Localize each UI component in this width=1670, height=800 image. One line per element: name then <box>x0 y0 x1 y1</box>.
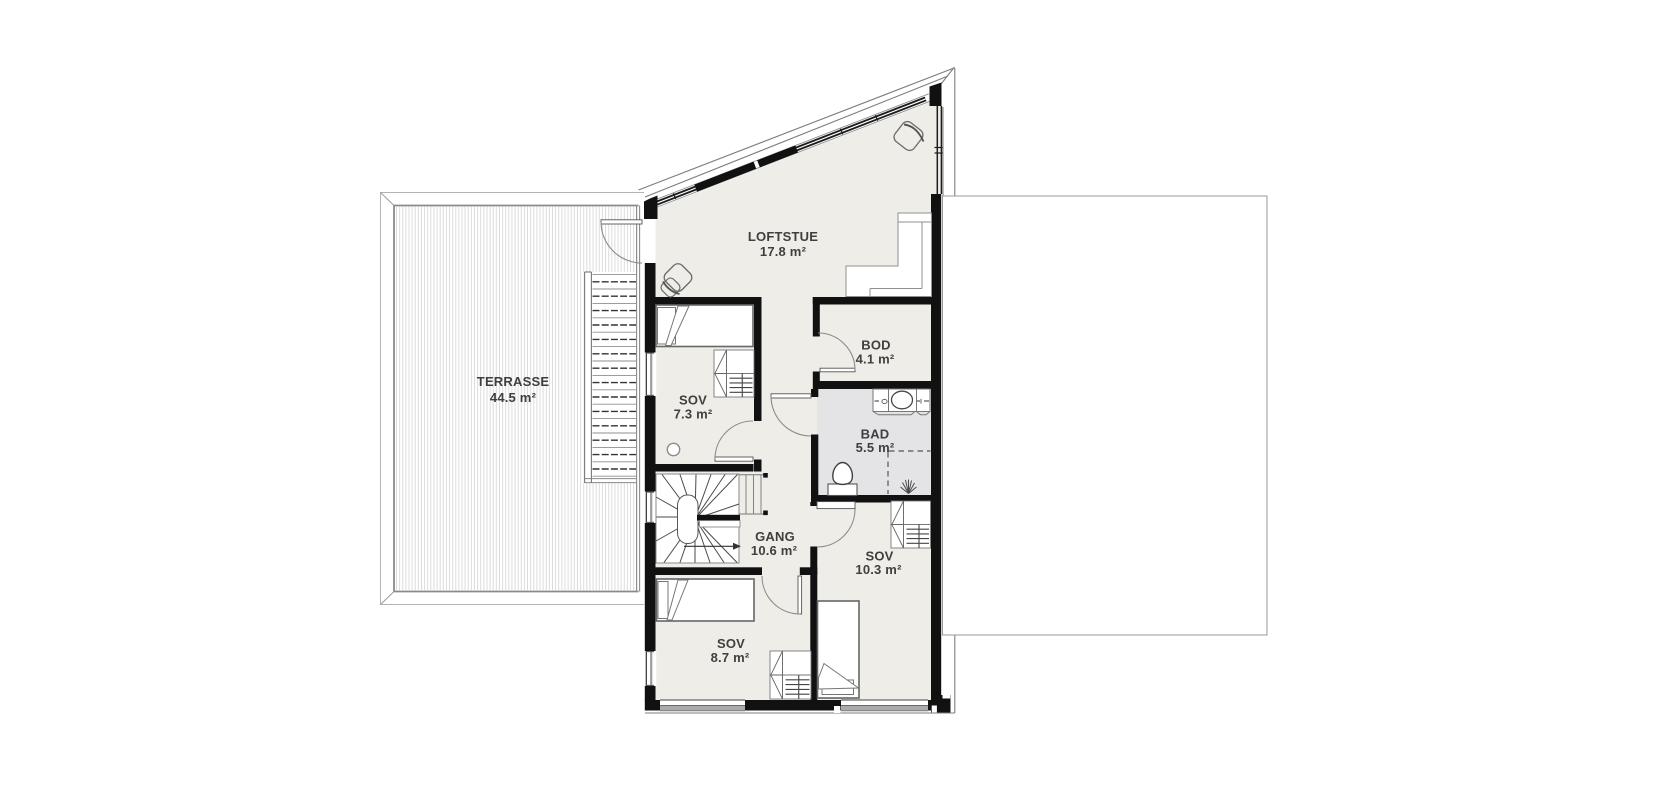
svg-text:TERRASSE: TERRASSE <box>477 374 550 389</box>
svg-text:44.5 m²: 44.5 m² <box>490 390 537 405</box>
svg-text:GANG: GANG <box>755 529 795 544</box>
svg-text:SOV: SOV <box>717 636 745 651</box>
svg-text:10.3 m²: 10.3 m² <box>855 562 902 577</box>
svg-text:10.6 m²: 10.6 m² <box>751 543 798 558</box>
svg-text:BOD: BOD <box>861 338 891 353</box>
svg-text:SOV: SOV <box>679 393 707 408</box>
svg-text:4.1 m²: 4.1 m² <box>856 352 895 367</box>
svg-text:5.5 m²: 5.5 m² <box>856 440 895 455</box>
svg-text:17.8 m²: 17.8 m² <box>760 244 807 259</box>
svg-text:7.3 m²: 7.3 m² <box>674 407 713 422</box>
svg-text:8.7 m²: 8.7 m² <box>711 650 750 665</box>
svg-text:LOFTSTUE: LOFTSTUE <box>748 229 818 244</box>
